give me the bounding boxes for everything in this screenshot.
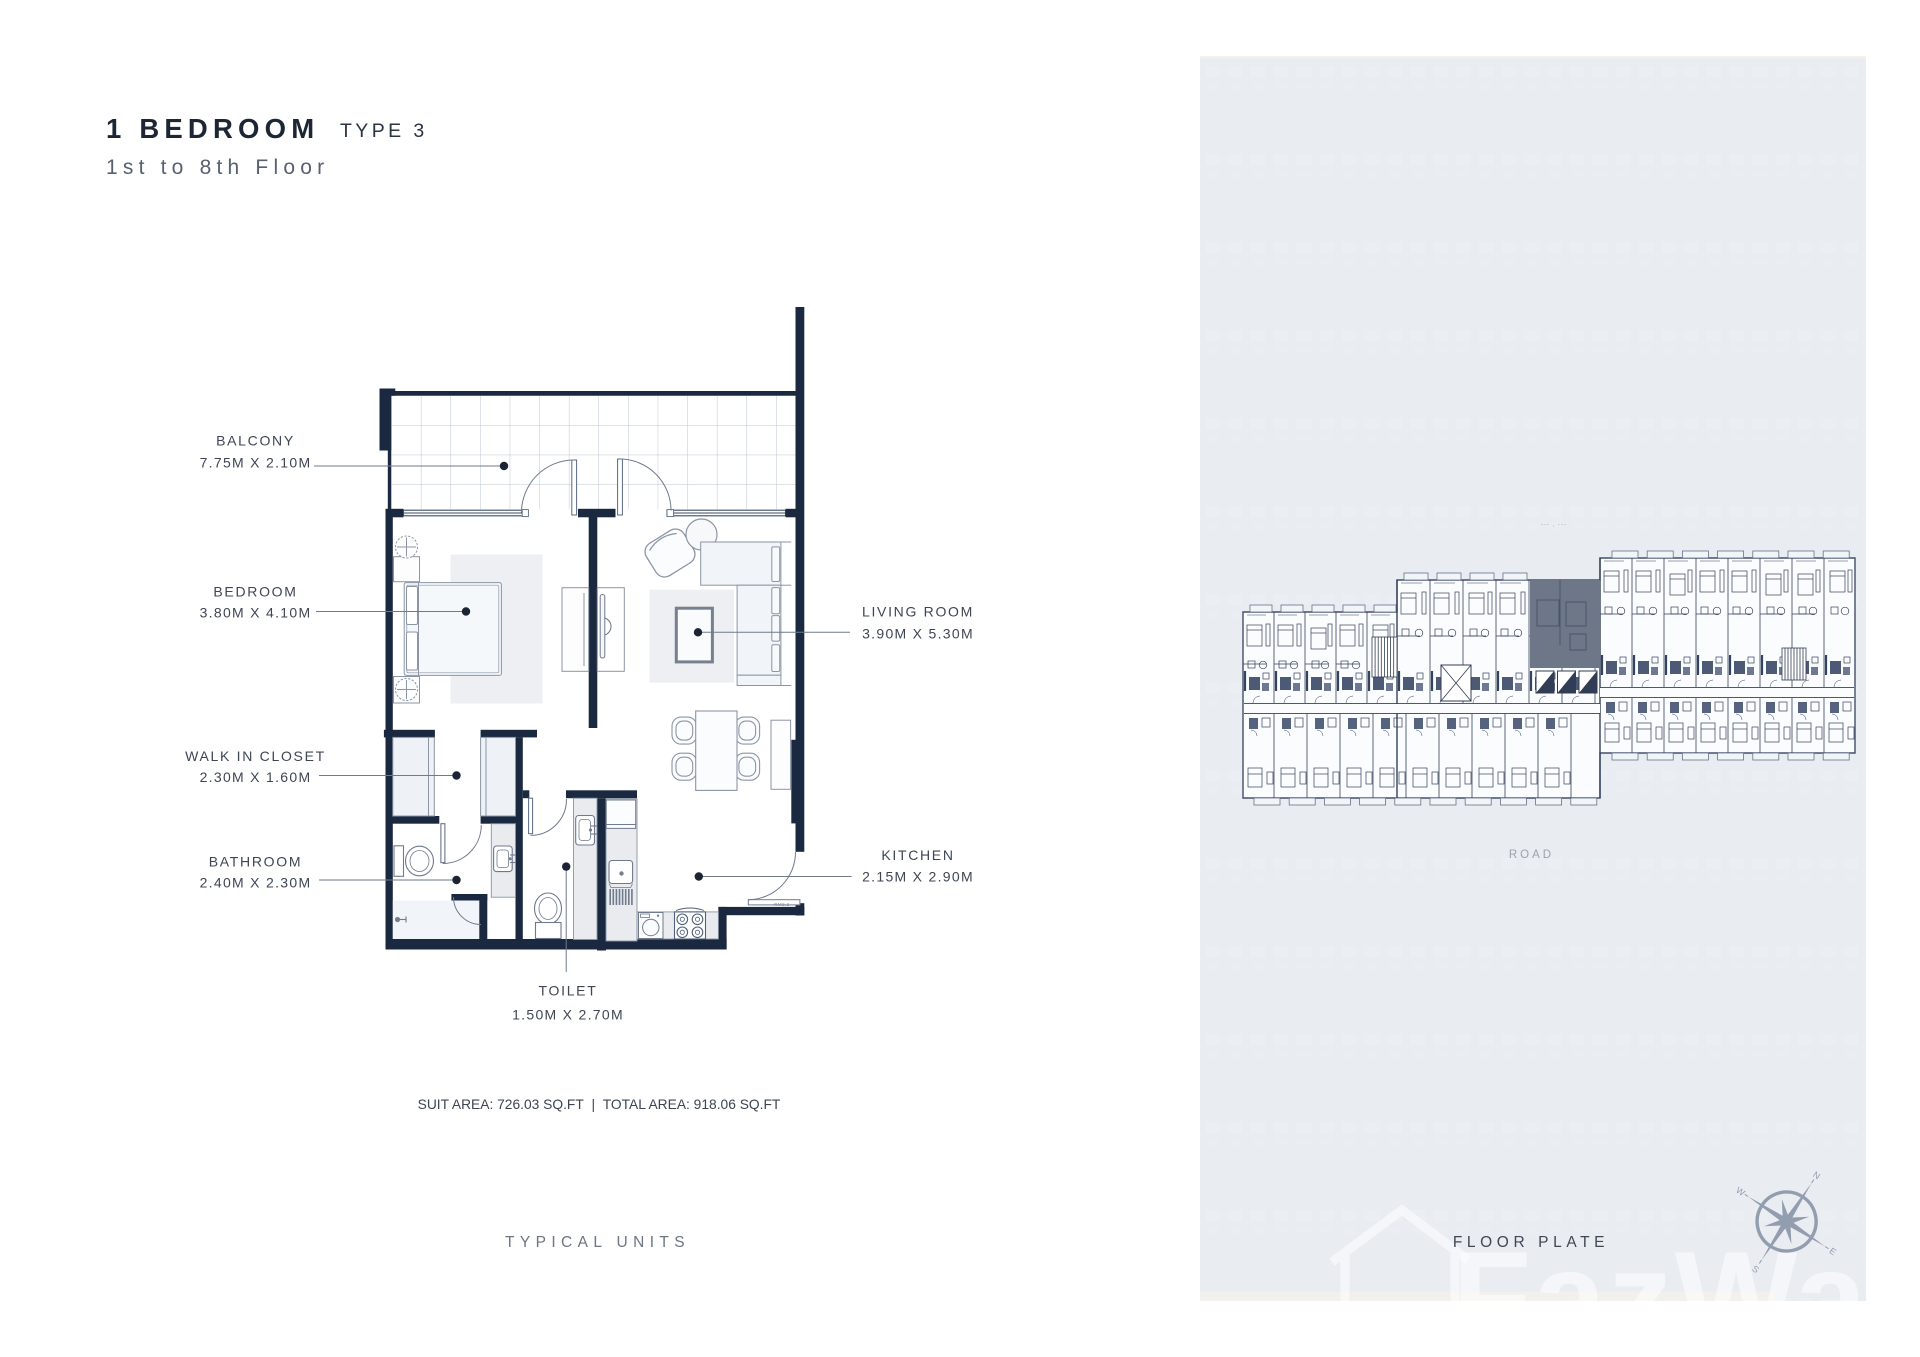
svg-text:2.15M X 2.90M: 2.15M X 2.90M — [862, 869, 974, 885]
svg-text:LIVING ROOM: LIVING ROOM — [862, 604, 974, 620]
svg-text:BEDROOM: BEDROOM — [213, 584, 297, 600]
svg-text:BALCONY: BALCONY — [216, 433, 295, 449]
svg-text:3.90M X 5.30M: 3.90M X 5.30M — [862, 626, 974, 642]
svg-text:1 BEDROOM: 1 BEDROOM — [106, 113, 319, 144]
svg-text:2.40M X 2.30M: 2.40M X 2.30M — [200, 875, 312, 891]
svg-text:RM2.2: RM2.2 — [774, 902, 790, 907]
svg-text:2.30M X 1.60M: 2.30M X 1.60M — [200, 769, 312, 785]
svg-text:KITCHEN: KITCHEN — [881, 847, 954, 863]
svg-text:BATHROOM: BATHROOM — [209, 854, 302, 870]
svg-text:7.75M X 2.10M: 7.75M X 2.10M — [200, 455, 312, 471]
svg-text:ROAD: ROAD — [1509, 849, 1554, 861]
svg-text:1st to 8th Floor: 1st to 8th Floor — [106, 156, 329, 179]
svg-text:SUIT AREA: 726.03 SQ.FT | TO: SUIT AREA: 726.03 SQ.FT | TOTAL AREA: 91… — [418, 1097, 781, 1112]
svg-text:TYPE 3: TYPE 3 — [340, 120, 428, 142]
svg-text:WALK IN CLOSET: WALK IN CLOSET — [185, 748, 326, 764]
svg-text:FLOOR PLATE: FLOOR PLATE — [1453, 1234, 1609, 1251]
svg-text:1.50M X 2.70M: 1.50M X 2.70M — [512, 1007, 624, 1023]
svg-text:TYPICAL UNITS: TYPICAL UNITS — [505, 1234, 690, 1251]
svg-text:3.80M X 4.10M: 3.80M X 4.10M — [200, 605, 312, 621]
svg-text:TOILET: TOILET — [539, 983, 598, 999]
svg-text:--- , ---: --- , --- — [1541, 522, 1567, 528]
